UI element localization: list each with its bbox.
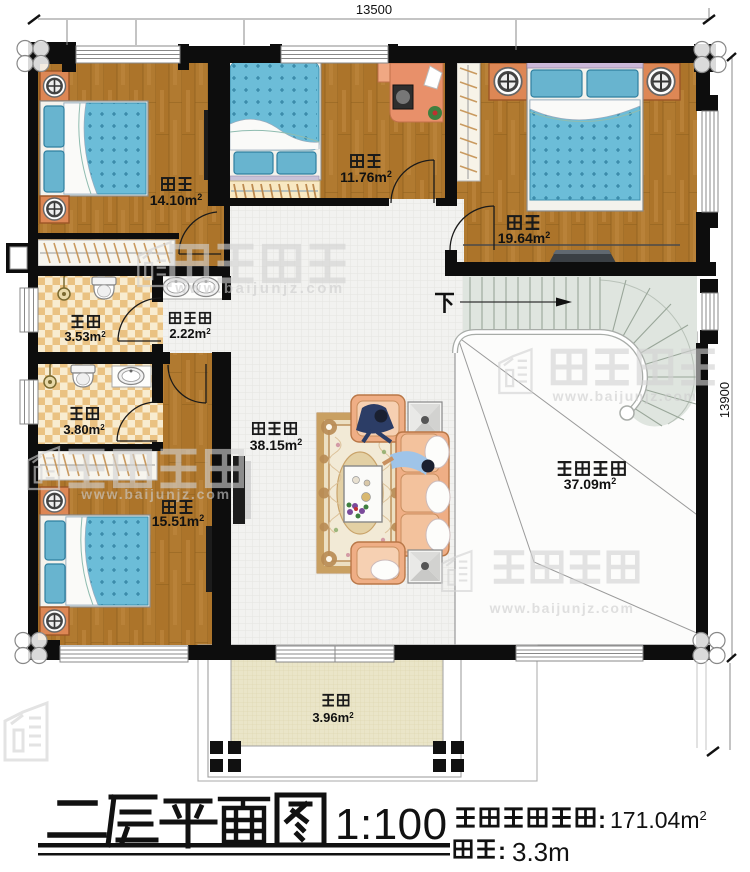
svg-text:3.53m2: 3.53m2 [64,329,106,344]
svg-text:37.09m2: 37.09m2 [564,476,617,492]
svg-text:13500: 13500 [356,2,392,17]
svg-text::: : [598,807,606,834]
svg-text:11.76m2: 11.76m2 [340,169,392,185]
svg-text:19.64m2: 19.64m2 [498,230,551,246]
svg-text:www.baijunjz.com: www.baijunjz.com [489,600,635,616]
svg-text:3.80m2: 3.80m2 [63,422,105,437]
svg-text:38.15m2: 38.15m2 [250,437,303,453]
svg-text::: : [498,838,506,865]
svg-text:3.3m: 3.3m [512,837,570,867]
svg-text:www.baijunjz.com: www.baijunjz.com [80,486,231,502]
svg-text:1:100: 1:100 [335,800,448,849]
svg-text:3.96m2: 3.96m2 [312,710,354,725]
svg-text:www.baijunjz.com: www.baijunjz.com [174,280,344,297]
svg-text:14.10m2: 14.10m2 [150,192,203,208]
svg-text:13900: 13900 [717,382,732,418]
svg-text:www.baijunjz.com: www.baijunjz.com [552,388,698,404]
svg-text:2.22m2: 2.22m2 [169,326,211,341]
svg-text:171.04m2: 171.04m2 [610,807,707,833]
svg-text:15.51m2: 15.51m2 [152,513,205,529]
